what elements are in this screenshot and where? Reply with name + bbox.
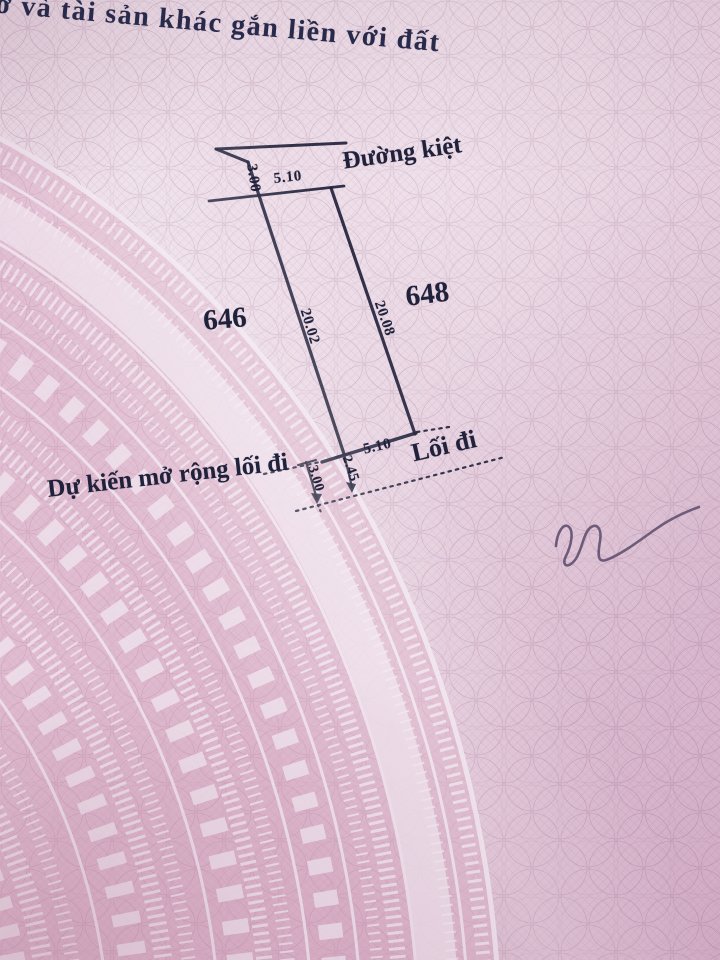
expansion-dim-dots: [318, 505, 322, 515]
parcel-number-646: 646: [202, 303, 248, 336]
walkway-dotted-lower: [296, 457, 505, 511]
dim-top-width: 5.10: [273, 169, 303, 187]
parcel-number-648: 648: [404, 278, 451, 312]
parcel-left-boundary: [248, 162, 344, 454]
expansion-dim-arrow: [311, 493, 322, 504]
road-edge-line: [216, 143, 346, 149]
dim-road-setback: 3.00: [243, 163, 262, 193]
road-corner-line: [216, 149, 248, 162]
parcel-top-line: [209, 186, 344, 201]
handwritten-pen-mark: [556, 507, 699, 565]
land-certificate-photo: Nhà ở và tài sản khác gắn liền với đất Đ…: [0, 0, 720, 960]
